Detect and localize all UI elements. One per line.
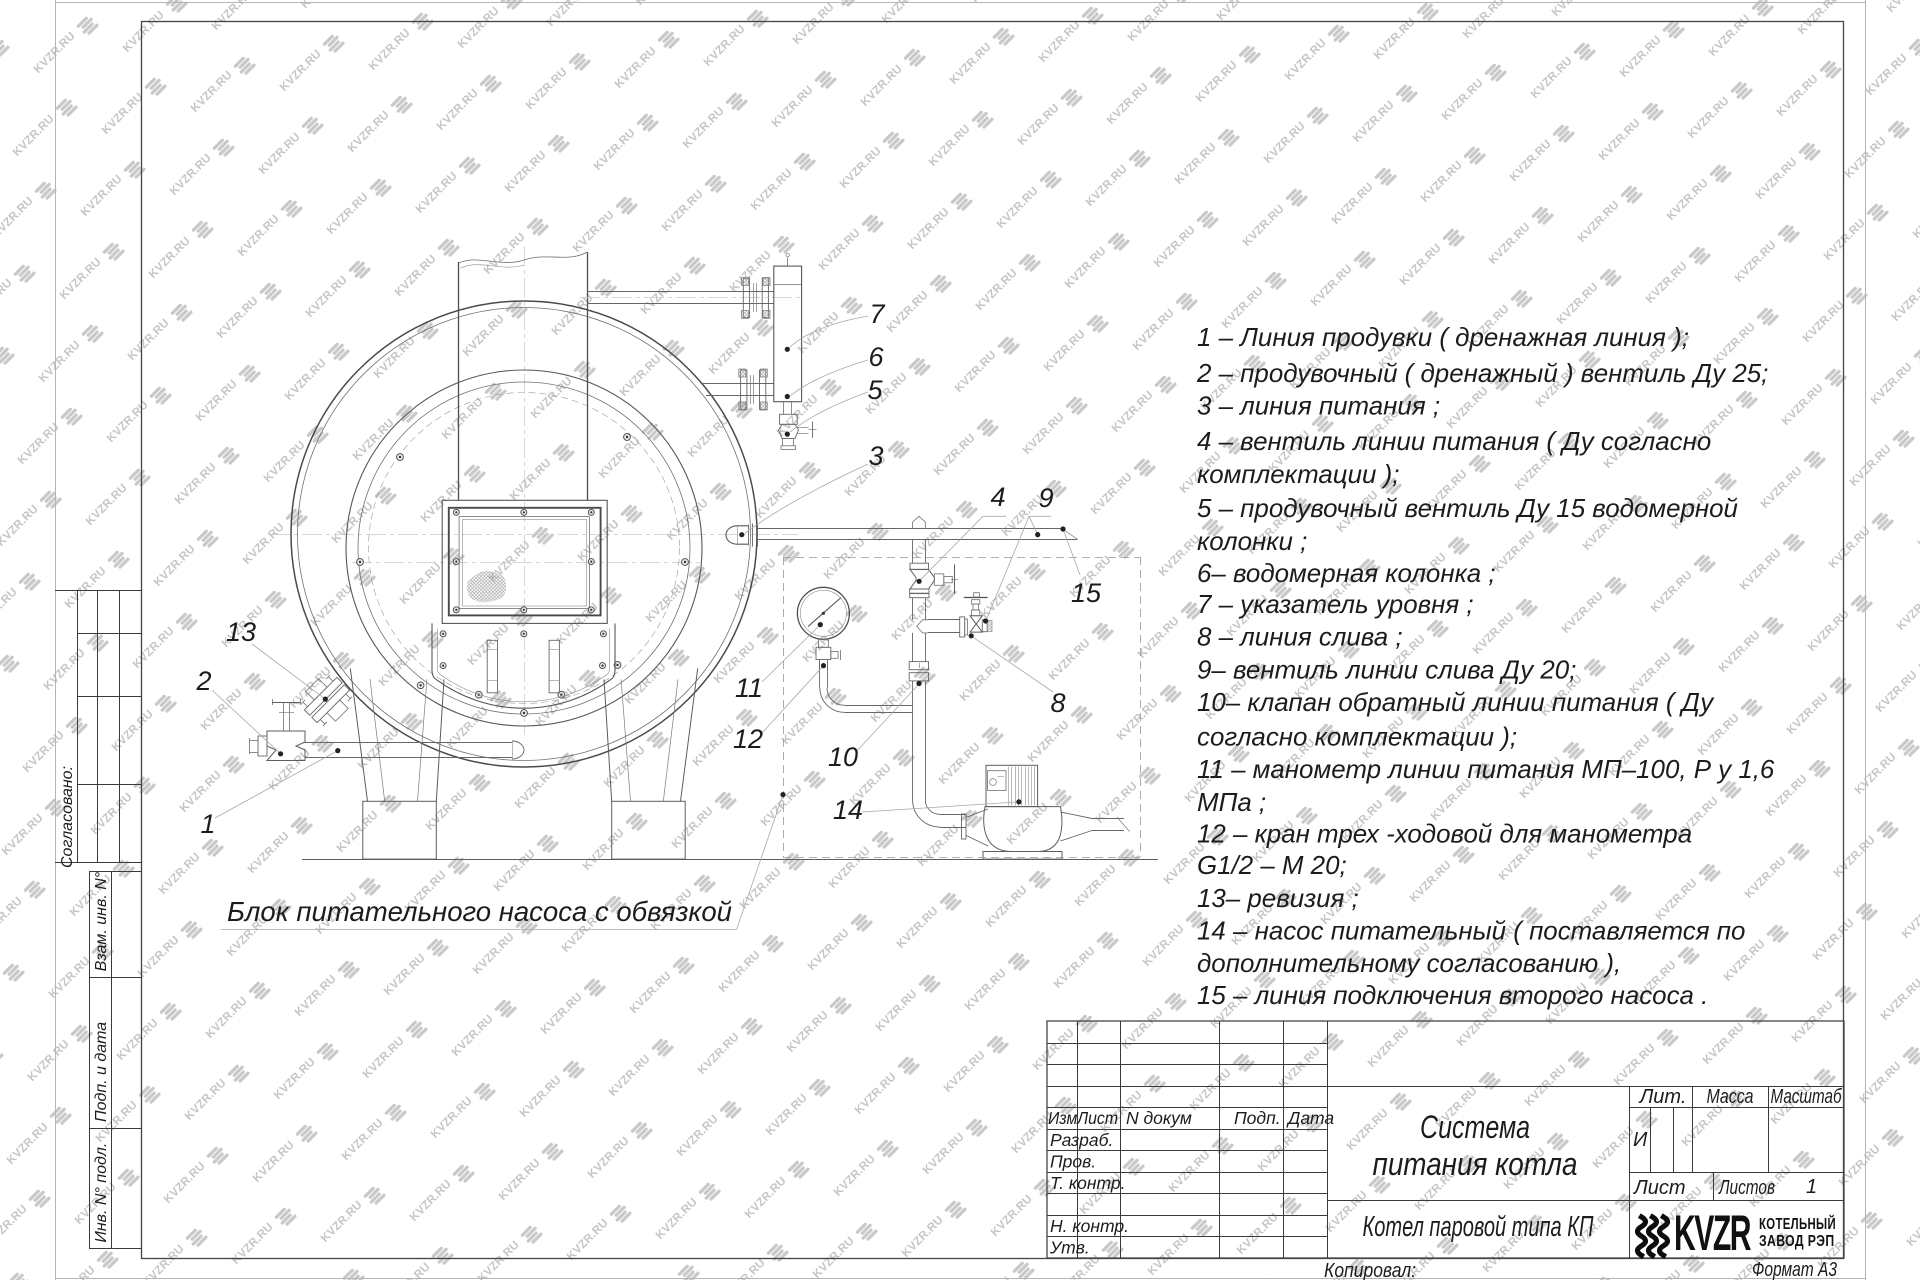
svg-text:Масштаб: Масштаб	[1771, 1086, 1843, 1108]
svg-text:8 – линия слива ;: 8 – линия слива ;	[1197, 624, 1403, 652]
svg-text:Формат А3: Формат А3	[1752, 1259, 1837, 1280]
svg-text:Котел паровой типа КП: Котел паровой типа КП	[1363, 1211, 1595, 1243]
svg-text:10: 10	[828, 742, 858, 772]
svg-text:колонки ;: колонки ;	[1197, 528, 1307, 556]
svg-text:И: И	[1633, 1129, 1648, 1151]
svg-text:согласно комплектации );: согласно комплектации );	[1197, 724, 1517, 752]
svg-text:7: 7	[869, 299, 885, 329]
svg-text:Система: Система	[1420, 1109, 1530, 1145]
svg-text:Н. контр.: Н. контр.	[1050, 1216, 1129, 1236]
svg-text:14: 14	[833, 795, 863, 825]
svg-text:5 – продувочный вентиль Ду 15: 5 – продувочный вентиль Ду 15 водомерной	[1197, 495, 1738, 523]
svg-text:7 – указатель уровня ;: 7 – указатель уровня ;	[1197, 591, 1474, 619]
svg-text:Инв. N° подл.: Инв. N° подл.	[93, 1143, 110, 1243]
svg-text:15: 15	[1071, 578, 1102, 608]
svg-text:Разраб.: Разраб.	[1050, 1130, 1113, 1150]
svg-text:дополнительному согласованию ): дополнительному согласованию ),	[1197, 950, 1621, 978]
svg-text:Лит.: Лит.	[1638, 1086, 1687, 1108]
svg-text:ЗАВОД РЭП: ЗАВОД РЭП	[1759, 1233, 1835, 1250]
svg-text:6– водомерная колонка ;: 6– водомерная колонка ;	[1197, 560, 1496, 588]
svg-text:10– клапан обратный линии пит: 10– клапан обратный линии питания ( Ду	[1197, 689, 1715, 717]
svg-text:Т. контр.: Т. контр.	[1050, 1173, 1125, 1193]
svg-text:Масса: Масса	[1707, 1086, 1754, 1108]
svg-text:Блок питательного насоса с обв: Блок питательного насоса с обвязкой	[227, 896, 732, 927]
svg-text:КОТЕЛЬНЫЙ: КОТЕЛЬНЫЙ	[1759, 1214, 1836, 1233]
svg-text:3: 3	[868, 441, 883, 471]
svg-text:5: 5	[867, 375, 883, 405]
svg-text:Согласовано:: Согласовано:	[59, 766, 76, 868]
svg-text:4: 4	[990, 482, 1005, 512]
svg-text:13– ревизия ;: 13– ревизия ;	[1197, 885, 1359, 913]
svg-text:1 – Линия продувки ( дренажн: 1 – Линия продувки ( дренажная линия );	[1197, 324, 1689, 352]
svg-text:Листов: Листов	[1717, 1177, 1775, 1199]
svg-text:ИзмЛист: ИзмЛист	[1048, 1108, 1118, 1128]
svg-text:Подп. и дата: Подп. и дата	[93, 1022, 110, 1122]
svg-text:9: 9	[1038, 483, 1053, 513]
svg-text:9– вентиль линии слива Ду 20;: 9– вентиль линии слива Ду 20;	[1197, 657, 1576, 685]
svg-text:питания котла: питания котла	[1373, 1146, 1578, 1182]
svg-text:Взам. инв. N°: Взам. инв. N°	[93, 871, 110, 971]
svg-text:2 – продувочный ( дренажный: 2 – продувочный ( дренажный ) вентиль Ду…	[1196, 360, 1768, 388]
svg-text:4 – вентиль линии питания (: 4 – вентиль линии питания ( Ду согласно	[1197, 428, 1711, 456]
svg-text:1: 1	[200, 809, 215, 839]
svg-text:14 – насос питательный ( пос: 14 – насос питательный ( поставляется по	[1197, 917, 1745, 945]
svg-text:6: 6	[868, 342, 884, 372]
svg-text:Утв.: Утв.	[1049, 1238, 1090, 1258]
svg-text:1: 1	[1806, 1176, 1817, 1198]
svg-text:12 – кран трех -ходовой для м: 12 – кран трех -ходовой для манометра	[1197, 820, 1692, 848]
svg-text:2: 2	[195, 666, 211, 696]
svg-text:Лист: Лист	[1632, 1177, 1686, 1199]
svg-text:МПа ;: МПа ;	[1197, 789, 1266, 817]
svg-text:Подп.: Подп.	[1234, 1108, 1281, 1128]
svg-text:Копировал:: Копировал:	[1324, 1260, 1416, 1280]
svg-text:комплектации );: комплектации );	[1197, 461, 1399, 489]
svg-text:N докум: N докум	[1126, 1108, 1192, 1128]
svg-text:Дата: Дата	[1286, 1108, 1334, 1128]
svg-text:12: 12	[733, 724, 763, 754]
svg-text:3 – линия питания ;: 3 – линия питания ;	[1197, 393, 1440, 421]
svg-text:G1/2 – М 20;: G1/2 – М 20;	[1197, 852, 1347, 880]
svg-text:13: 13	[226, 617, 256, 647]
svg-text:15 – линия подключения второг: 15 – линия подключения второго насоса .	[1197, 982, 1708, 1010]
svg-text:KVZR: KVZR	[1674, 1205, 1751, 1261]
svg-text:8: 8	[1050, 688, 1065, 718]
svg-text:11 – манометр линии питания М: 11 – манометр линии питания МП–100, Р у …	[1197, 756, 1775, 784]
svg-text:Пров.: Пров.	[1050, 1152, 1096, 1172]
svg-text:11: 11	[735, 673, 763, 703]
